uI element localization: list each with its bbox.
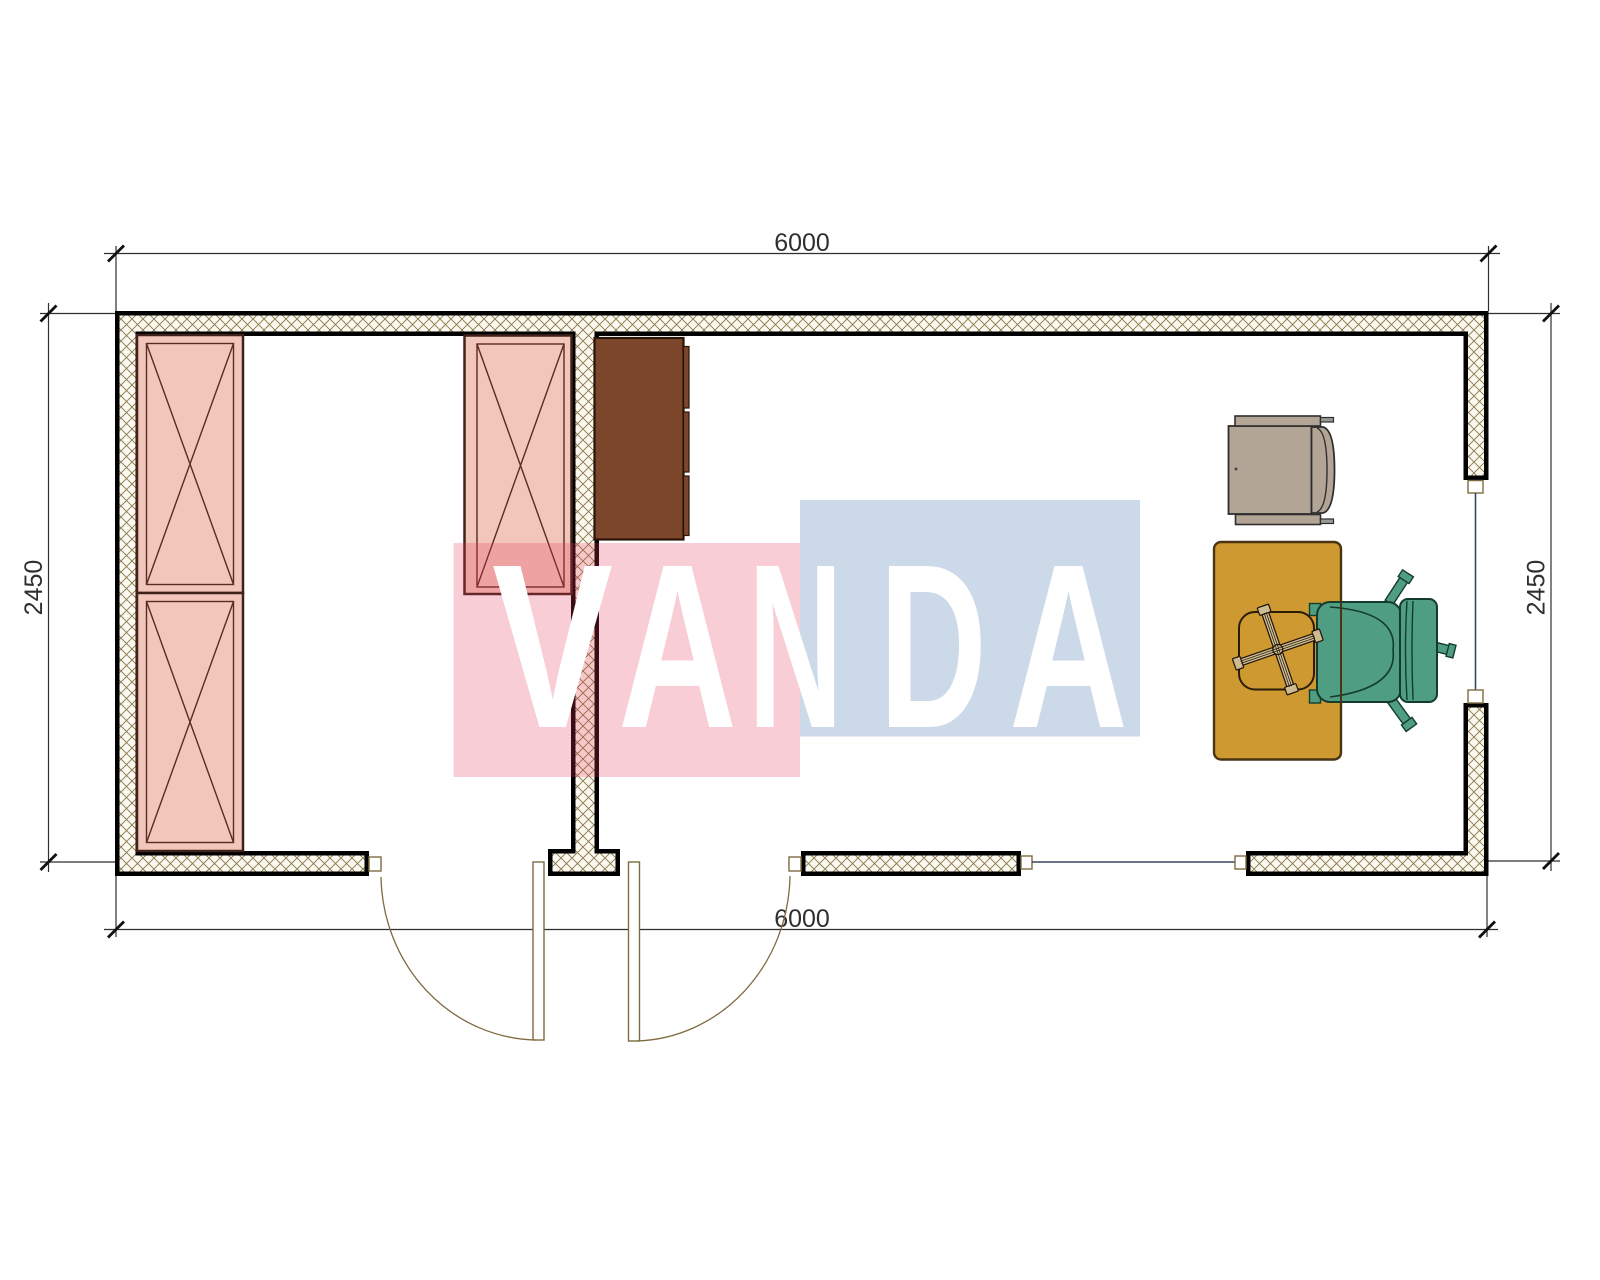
svg-text:V: V xyxy=(492,515,613,777)
svg-text:6000: 6000 xyxy=(774,905,830,933)
svg-text:2450: 2450 xyxy=(20,560,48,616)
svg-text:6000: 6000 xyxy=(774,229,830,257)
svg-text:A: A xyxy=(1009,515,1128,777)
svg-text:N: N xyxy=(748,515,843,777)
svg-text:2450: 2450 xyxy=(1523,560,1551,616)
svg-text:D: D xyxy=(879,515,987,777)
svg-text:A: A xyxy=(618,515,737,777)
